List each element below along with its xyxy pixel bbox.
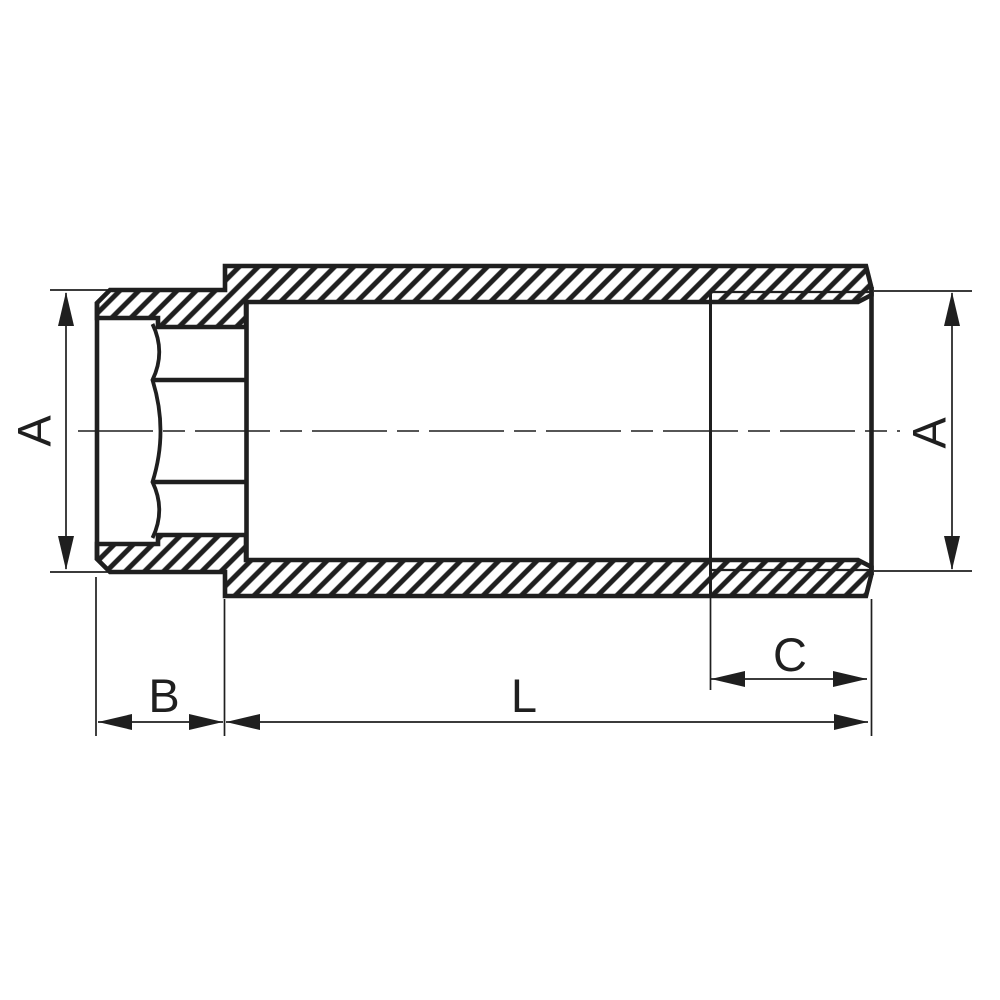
dim-a-left-arrow-up <box>58 292 74 326</box>
dim-b-arrow-left <box>98 714 132 730</box>
dim-c: C <box>711 595 868 690</box>
dim-a-right-label: A <box>903 417 956 449</box>
lower-wall-hatched-section <box>97 535 872 596</box>
dim-a-right-arrow-down <box>944 536 960 570</box>
technical-drawing-canvas: A A B L C <box>0 0 1000 1000</box>
dim-c-arrow-right <box>833 671 867 687</box>
dim-a-left-arrow-down <box>58 536 74 570</box>
dim-a-right: A <box>874 291 972 571</box>
dim-b-label: B <box>148 669 179 722</box>
fitting-section-drawing: A A B L C <box>0 0 1000 1000</box>
dim-b: B <box>96 577 225 736</box>
dim-c-label: C <box>773 628 807 681</box>
dim-l-arrow-right <box>834 714 868 730</box>
dim-b-arrow-right <box>189 714 223 730</box>
dim-a-right-arrow-up <box>944 292 960 326</box>
internal-thread-wavy-line <box>153 324 161 538</box>
dim-a-left-label: A <box>8 415 61 447</box>
dim-l-arrow-left <box>226 714 260 730</box>
dim-l-label: L <box>511 669 537 722</box>
dim-c-arrow-left <box>711 671 745 687</box>
upper-wall-hatched-section <box>97 266 872 327</box>
